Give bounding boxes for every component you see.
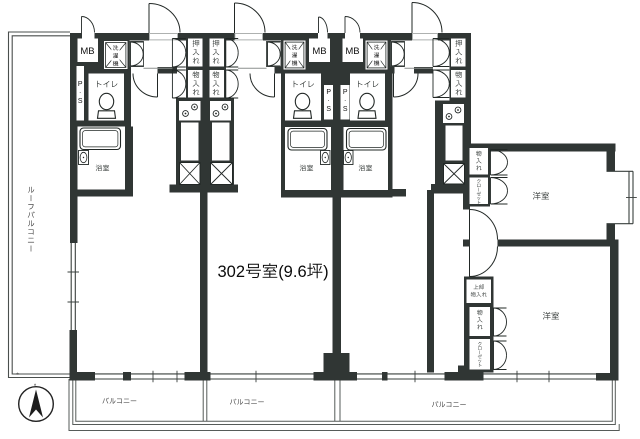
svg-text:MB: MB: [312, 46, 326, 57]
svg-text:S: S: [78, 98, 83, 105]
svg-text:S: S: [343, 106, 348, 113]
svg-text:302: 302: [218, 263, 246, 281]
svg-text:S: S: [326, 106, 331, 113]
svg-text:MB: MB: [80, 46, 94, 57]
svg-text:·: ·: [344, 98, 346, 105]
svg-text:MB: MB: [345, 46, 359, 57]
svg-text:): ): [323, 263, 329, 281]
svg-text:P: P: [343, 89, 348, 96]
svg-text:·: ·: [328, 98, 330, 105]
svg-text:P: P: [78, 81, 83, 88]
svg-text:P: P: [326, 89, 331, 96]
svg-text:·: ·: [79, 90, 81, 97]
svg-text:(9.6: (9.6: [278, 263, 306, 281]
